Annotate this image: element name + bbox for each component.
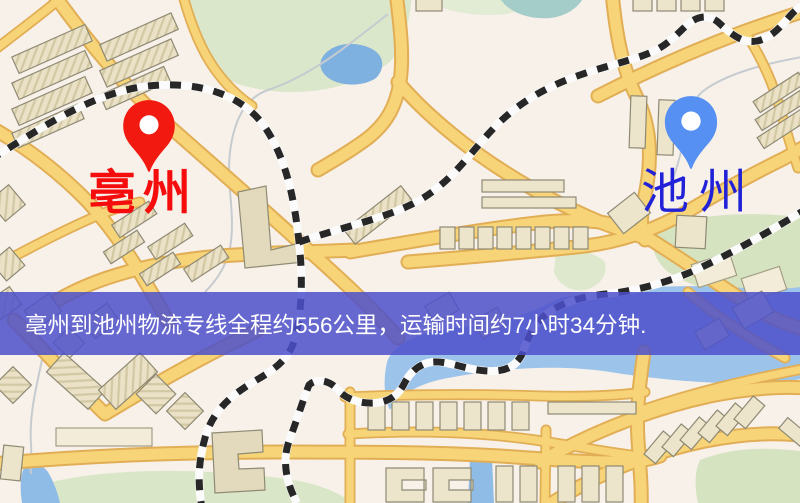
map-graphics	[0, 0, 800, 503]
blue-location-pin-icon	[663, 95, 719, 170]
origin-pin[interactable]	[122, 99, 176, 173]
red-location-pin-icon	[122, 99, 176, 173]
route-info-banner: 亳州到池州物流专线全程约556公里，运输时间约7小时34分钟.	[0, 292, 800, 355]
origin-city-label: 亳州	[88, 170, 198, 218]
destination-city-label: 池州	[641, 169, 757, 217]
map-canvas[interactable]: 亳州 池州 亳州到池州物流专线全程约556公里，运输时间约7小时34分钟.	[0, 0, 800, 503]
destination-pin[interactable]	[663, 95, 719, 170]
route-info-text: 亳州到池州物流专线全程约556公里，运输时间约7小时34分钟.	[0, 308, 646, 340]
